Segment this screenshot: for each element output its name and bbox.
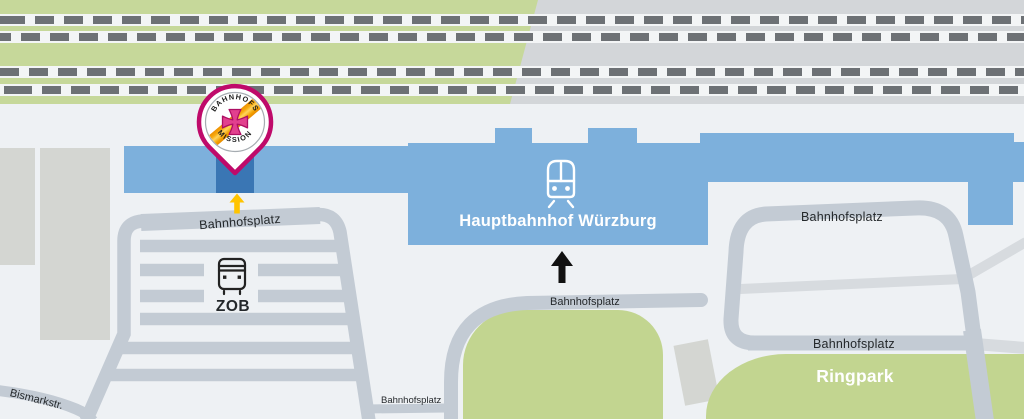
zob-label: ZOB xyxy=(205,298,261,316)
road-forecourt xyxy=(451,300,701,419)
street-label-bahnhofsplatz-northeast: Bahnhofsplatz xyxy=(801,210,883,224)
street-label-bahnhofsplatz-east: Bahnhofsplatz xyxy=(813,337,895,351)
bus-icon xyxy=(214,255,250,297)
ringpark-label: Ringpark xyxy=(775,366,935,387)
road-diagonal-light xyxy=(740,242,1024,289)
road-northeast-loop xyxy=(731,208,985,419)
station-label: Hauptbahnhof Würzburg xyxy=(408,212,708,231)
entrance-arrow-icon xyxy=(228,193,246,214)
station-area-map: ZOB Bahnhofsplatz Bahnhofsplatz Bahnhofs… xyxy=(0,0,1024,419)
train-icon xyxy=(543,156,579,212)
street-label-bahnhofsplatz-south: Bahnhofsplatz xyxy=(381,395,441,406)
street-label-bahnhofsplatz-forecourt: Bahnhofsplatz xyxy=(550,296,620,308)
bahnhofsmission-pin[interactable]: BAHNHOFS MISSION xyxy=(193,82,277,176)
north-arrow-icon xyxy=(549,250,575,284)
road-forecourt-south xyxy=(366,408,447,409)
